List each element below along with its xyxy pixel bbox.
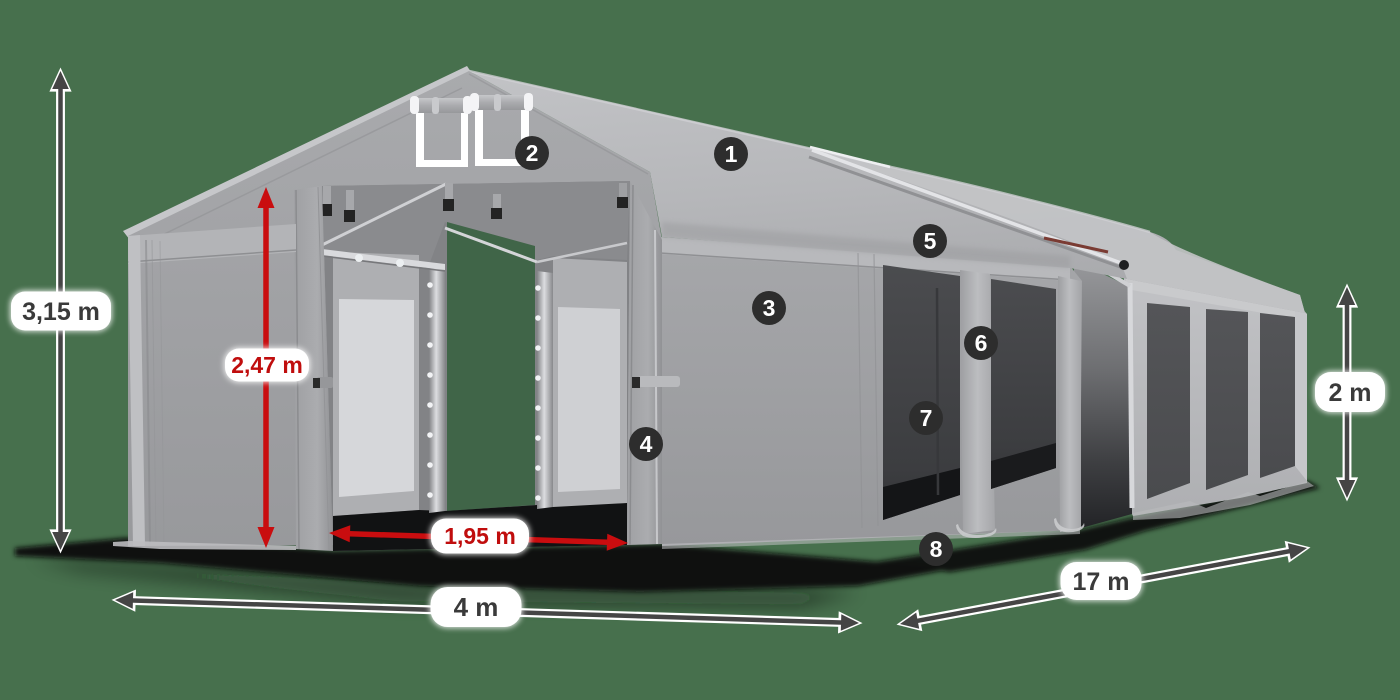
svg-text:17 m: 17 m [1073, 568, 1130, 596]
svg-text:6: 6 [975, 330, 988, 356]
svg-text:4 m: 4 m [454, 592, 499, 622]
svg-text:1,95 m: 1,95 m [444, 523, 516, 549]
svg-text:7: 7 [920, 405, 933, 431]
svg-text:2 m: 2 m [1328, 379, 1371, 407]
svg-text:2: 2 [526, 140, 539, 166]
svg-text:8: 8 [930, 536, 943, 562]
svg-text:1: 1 [725, 141, 738, 167]
svg-text:3,15 m: 3,15 m [22, 298, 100, 326]
svg-text:5: 5 [924, 228, 937, 254]
svg-text:4: 4 [640, 431, 653, 457]
svg-text:2,47 m: 2,47 m [231, 352, 303, 378]
svg-text:3: 3 [763, 295, 776, 321]
